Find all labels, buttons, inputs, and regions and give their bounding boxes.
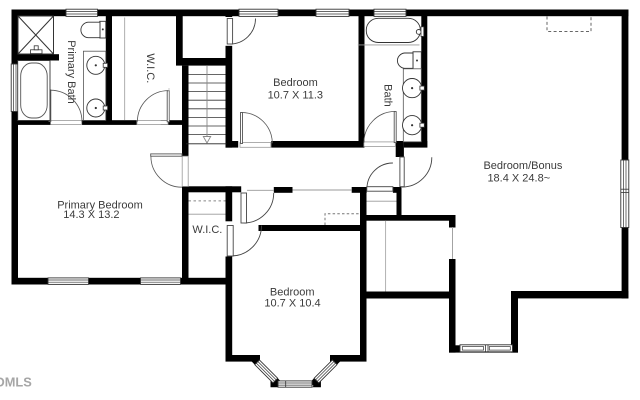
svg-text:18.4 X 24.8~: 18.4 X 24.8~	[487, 173, 550, 185]
svg-text:10.7 X 10.4: 10.7 X 10.4	[264, 298, 320, 310]
svg-text:W.I.C.: W.I.C.	[192, 224, 222, 236]
svg-text:Bedroom: Bedroom	[273, 77, 318, 89]
svg-text:Primary Bath: Primary Bath	[65, 40, 77, 104]
svg-text:DMLS: DMLS	[0, 375, 32, 390]
svg-text:10.7 X 11.3: 10.7 X 11.3	[268, 90, 323, 102]
svg-text:W.I.C.: W.I.C.	[144, 53, 156, 83]
svg-text:14.3 X 13.2: 14.3 X 13.2	[63, 209, 119, 221]
svg-text:Bath: Bath	[382, 84, 394, 107]
svg-text:Bedroom/Bonus: Bedroom/Bonus	[483, 160, 562, 172]
